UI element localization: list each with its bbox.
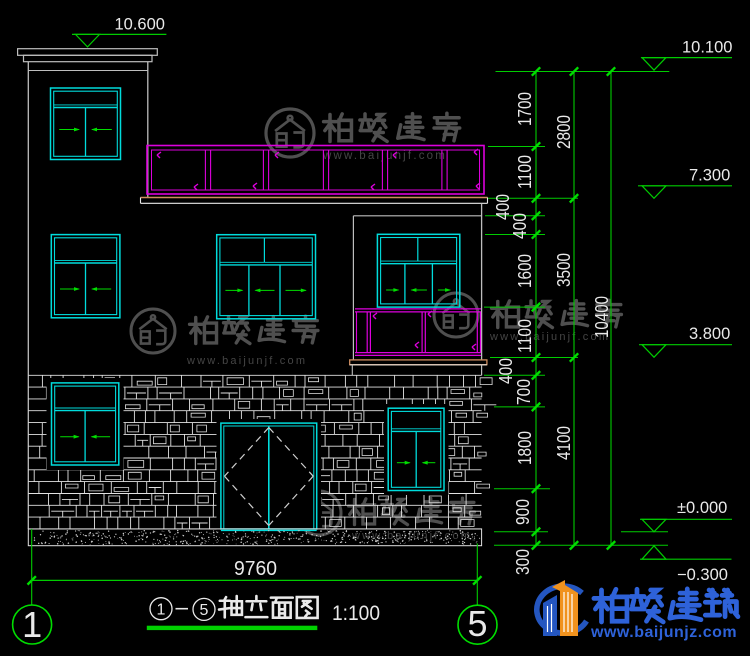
svg-text:1: 1 [157, 602, 166, 619]
svg-text:www.baijunjf.com: www.baijunjf.com [322, 150, 447, 162]
svg-text:1100: 1100 [515, 155, 535, 189]
svg-text:1700: 1700 [515, 92, 535, 126]
svg-text:700: 700 [514, 379, 534, 405]
svg-text:10.100: 10.100 [682, 39, 732, 57]
svg-text:1:100: 1:100 [332, 602, 380, 625]
svg-text:−0.300: −0.300 [677, 566, 728, 584]
svg-text:±0.000: ±0.000 [677, 499, 727, 517]
svg-text:300: 300 [513, 549, 533, 575]
svg-text:3500: 3500 [554, 253, 574, 287]
svg-text:10.600: 10.600 [115, 16, 165, 34]
svg-text:10400: 10400 [592, 296, 612, 338]
svg-text:2800: 2800 [554, 115, 574, 149]
svg-text:4100: 4100 [554, 426, 574, 460]
svg-text:www.baijunjz.com: www.baijunjz.com [590, 624, 737, 641]
svg-text:400: 400 [496, 358, 516, 384]
svg-text:3.800: 3.800 [689, 325, 730, 343]
svg-text:1: 1 [22, 604, 42, 645]
svg-text:www.baijunjf.com: www.baijunjf.com [186, 355, 307, 367]
svg-text:5: 5 [200, 602, 209, 619]
svg-text:5: 5 [467, 603, 487, 644]
svg-text:400: 400 [510, 213, 530, 239]
svg-text:900: 900 [513, 499, 533, 525]
svg-text:1800: 1800 [515, 431, 535, 465]
svg-text:1600: 1600 [515, 254, 535, 288]
svg-text:7.300: 7.300 [689, 167, 730, 185]
svg-text:9760: 9760 [234, 558, 277, 580]
svg-text:1100: 1100 [515, 319, 535, 353]
